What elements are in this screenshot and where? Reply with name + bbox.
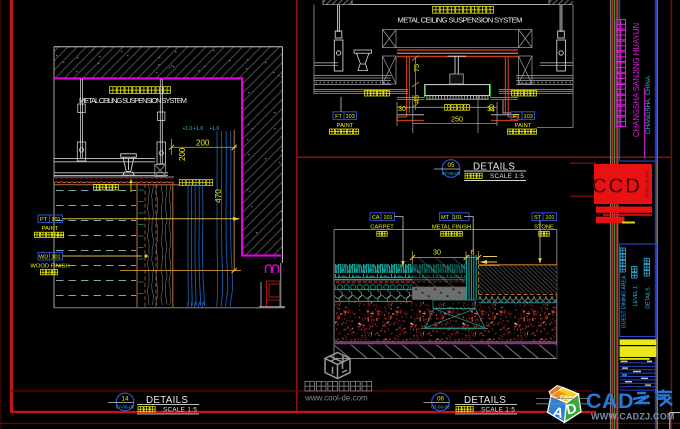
svg-text:www.cool-de.com: www.cool-de.com bbox=[304, 394, 368, 403]
svg-text:SCALE 1:5: SCALE 1:5 bbox=[481, 406, 515, 413]
svg-text:14: 14 bbox=[122, 395, 129, 402]
svg-text:103: 103 bbox=[524, 114, 533, 120]
svg-text:GUEST DINING AREA: GUEST DINING AREA bbox=[622, 275, 628, 328]
svg-text:PAINT: PAINT bbox=[42, 226, 59, 232]
svg-text:WD: WD bbox=[39, 254, 48, 260]
svg-text:WWW.CADZJ.COM: WWW.CADZJ.COM bbox=[591, 411, 675, 421]
svg-text:CHANGSHA SANJING HUAYUN: CHANGSHA SANJING HUAYUN bbox=[632, 23, 641, 137]
svg-text:07-06-08: 07-06-08 bbox=[431, 404, 450, 409]
svg-text:CAD: CAD bbox=[586, 389, 634, 413]
svg-text:FT: FT bbox=[335, 114, 342, 120]
svg-text:METAL CEILING SUSPENSION SYSTE: METAL CEILING SUSPENSION SYSTEM bbox=[79, 96, 187, 105]
svg-text:LEVEL 1: LEVEL 1 bbox=[633, 286, 639, 306]
svg-text:101: 101 bbox=[51, 217, 60, 223]
svg-text:PT: PT bbox=[40, 217, 48, 223]
svg-text:07-06-08: 07-06-08 bbox=[116, 404, 135, 409]
svg-text:METAL CEILING SUSPENSION SYSTE: METAL CEILING SUSPENSION SYSTEM bbox=[398, 16, 523, 25]
svg-text:31: 31 bbox=[487, 104, 495, 113]
svg-text:101: 101 bbox=[383, 215, 392, 221]
svg-text:PAINT: PAINT bbox=[337, 123, 354, 129]
svg-text:30: 30 bbox=[433, 248, 441, 257]
svg-text:CHANGSHA, CHINA: CHANGSHA, CHINA bbox=[645, 75, 652, 134]
svg-text:101: 101 bbox=[51, 254, 60, 260]
svg-text:PAINT: PAINT bbox=[515, 123, 532, 129]
svg-text:05: 05 bbox=[448, 162, 455, 169]
svg-text:SCALE 1:5: SCALE 1:5 bbox=[490, 173, 524, 180]
svg-text:STONE: STONE bbox=[534, 224, 554, 230]
svg-text:200: 200 bbox=[178, 147, 187, 161]
svg-text:101: 101 bbox=[453, 215, 462, 221]
svg-text:FT: FT bbox=[513, 114, 520, 120]
svg-text:103: 103 bbox=[346, 114, 355, 120]
svg-text:▪1.0: ▪1.0 bbox=[210, 126, 219, 132]
svg-text:ST: ST bbox=[534, 215, 542, 221]
svg-text:6: 6 bbox=[471, 248, 475, 257]
svg-text:▪1.0 ▪1.0: ▪1.0 ▪1.0 bbox=[183, 126, 203, 132]
svg-text:06: 06 bbox=[437, 395, 444, 402]
svg-text:CARPET: CARPET bbox=[370, 224, 394, 230]
svg-text:MT: MT bbox=[441, 215, 450, 221]
svg-text:WOOD FINISH: WOOD FINISH bbox=[30, 263, 69, 269]
svg-text:SCALE 1:5: SCALE 1:5 bbox=[163, 406, 197, 413]
svg-text:30: 30 bbox=[398, 104, 406, 113]
svg-text:101: 101 bbox=[545, 215, 554, 221]
svg-text:CA: CA bbox=[372, 215, 380, 221]
svg-text:470: 470 bbox=[214, 189, 223, 203]
svg-text:250: 250 bbox=[451, 115, 463, 124]
svg-text:07-06-08: 07-06-08 bbox=[442, 171, 461, 176]
svg-text:CCD: CCD bbox=[592, 176, 642, 198]
svg-text:200: 200 bbox=[196, 139, 210, 148]
svg-text:HONG KONG: HONG KONG bbox=[645, 171, 650, 197]
svg-text:DETAILS: DETAILS bbox=[646, 287, 652, 309]
svg-text:75: 75 bbox=[412, 64, 421, 72]
svg-text:METAL FINISH: METAL FINISH bbox=[432, 224, 471, 230]
svg-text:45: 45 bbox=[412, 95, 421, 103]
